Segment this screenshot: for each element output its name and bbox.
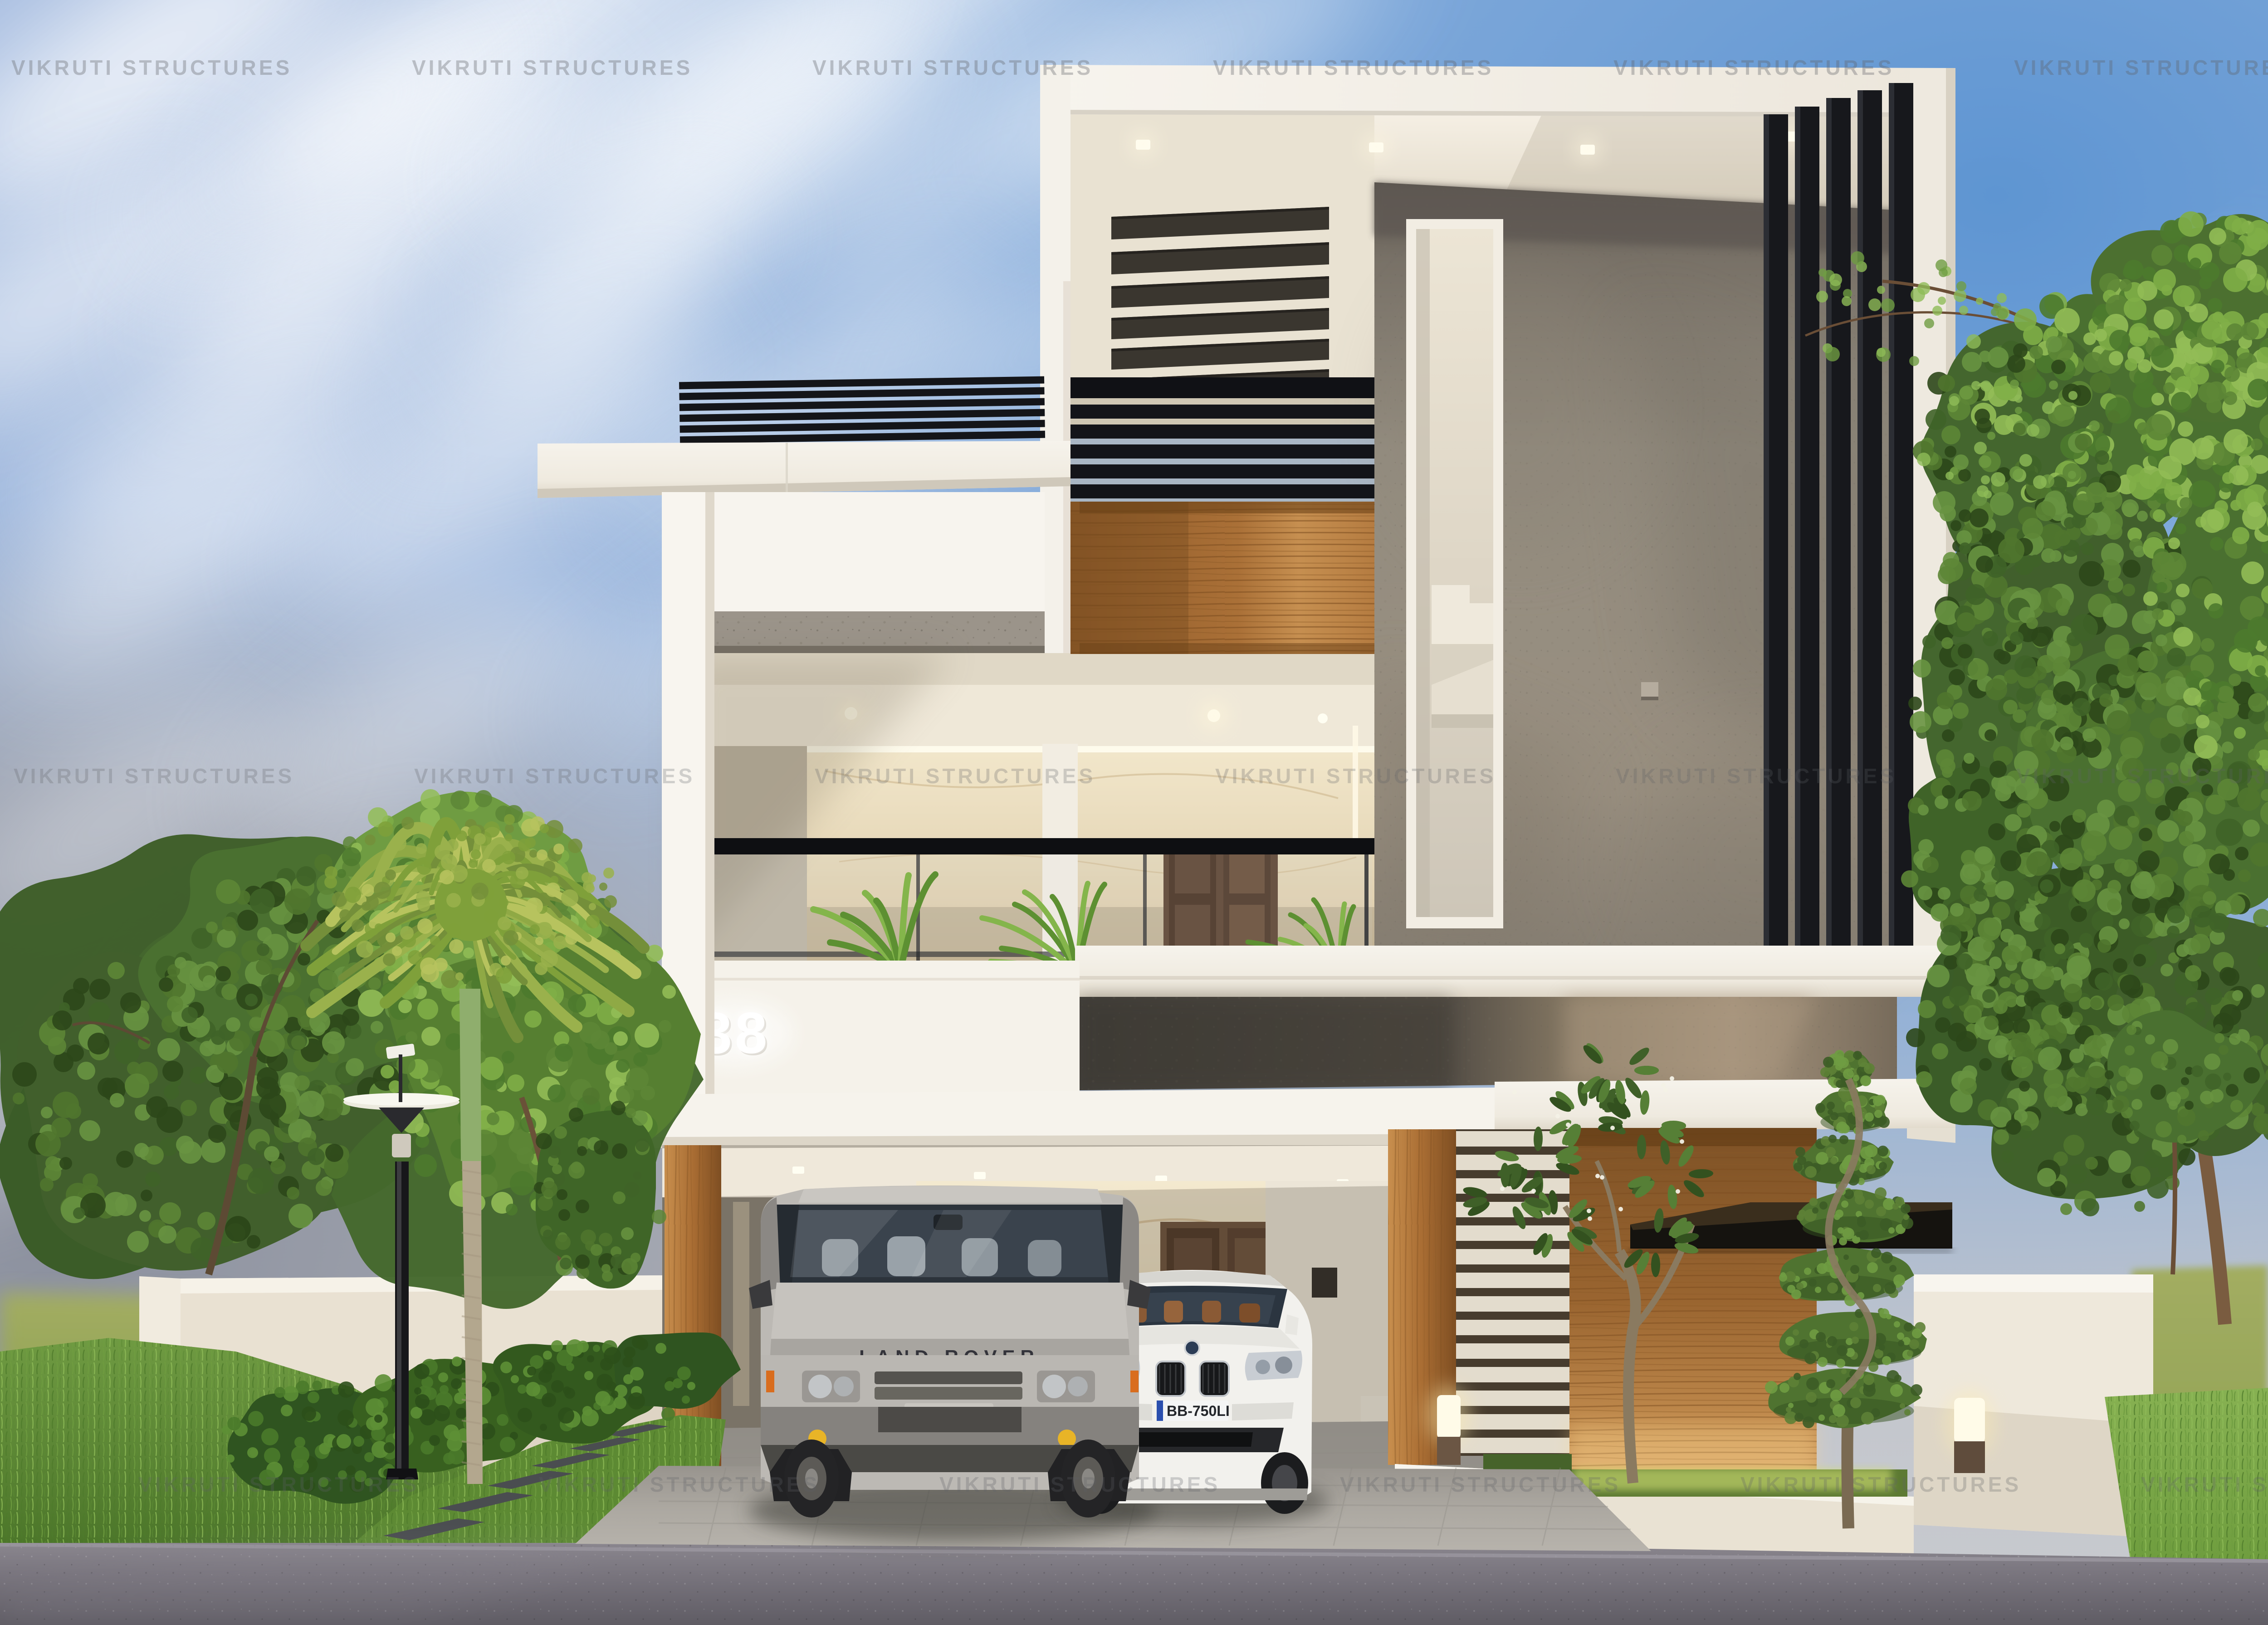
- svg-text:VIKRUTI STRUCTURES: VIKRUTI STRUCTURES: [11, 56, 292, 79]
- svg-text:BB-750LI: BB-750LI: [1167, 1403, 1230, 1419]
- svg-text:VIKRUTI STRUCTURES: VIKRUTI STRUCTURES: [812, 56, 1093, 79]
- svg-text:VIKRUTI STRUCTURES: VIKRUTI STRUCTURES: [1340, 1473, 1621, 1496]
- svg-text:VIKRUTI STRUCTURES: VIKRUTI STRUCTURES: [1215, 764, 1496, 788]
- svg-text:VIKRUTI STRUCTURES: VIKRUTI STRUCTURES: [414, 764, 695, 788]
- svg-text:VIKRUTI STRUCTURES: VIKRUTI STRUCTURES: [2141, 1473, 2268, 1496]
- svg-text:VIKRUTI STRUCTURES: VIKRUTI STRUCTURES: [539, 1473, 820, 1496]
- svg-text:VIKRUTI STRUCTURES: VIKRUTI STRUCTURES: [939, 1473, 1220, 1496]
- svg-text:VIKRUTI STRUCTURES: VIKRUTI STRUCTURES: [815, 764, 1095, 788]
- svg-text:VIKRUTI STRUCTURES: VIKRUTI STRUCTURES: [138, 1473, 419, 1496]
- svg-text:VIKRUTI STRUCTURES: VIKRUTI STRUCTURES: [14, 764, 294, 788]
- svg-text:VIKRUTI STRUCTURES: VIKRUTI STRUCTURES: [1613, 56, 1894, 79]
- svg-text:VIKRUTI STRUCTURES: VIKRUTI STRUCTURES: [412, 56, 693, 79]
- svg-text:VIKRUTI STRUCTURES: VIKRUTI STRUCTURES: [2014, 56, 2268, 79]
- svg-text:VIKRUTI STRUCTURES: VIKRUTI STRUCTURES: [1740, 1473, 2021, 1496]
- svg-text:VIKRUTI STRUCTURES: VIKRUTI STRUCTURES: [1616, 764, 1897, 788]
- svg-text:VIKRUTI STRUCTURES: VIKRUTI STRUCTURES: [2016, 764, 2268, 788]
- svg-text:VIKRUTI STRUCTURES: VIKRUTI STRUCTURES: [1213, 56, 1494, 79]
